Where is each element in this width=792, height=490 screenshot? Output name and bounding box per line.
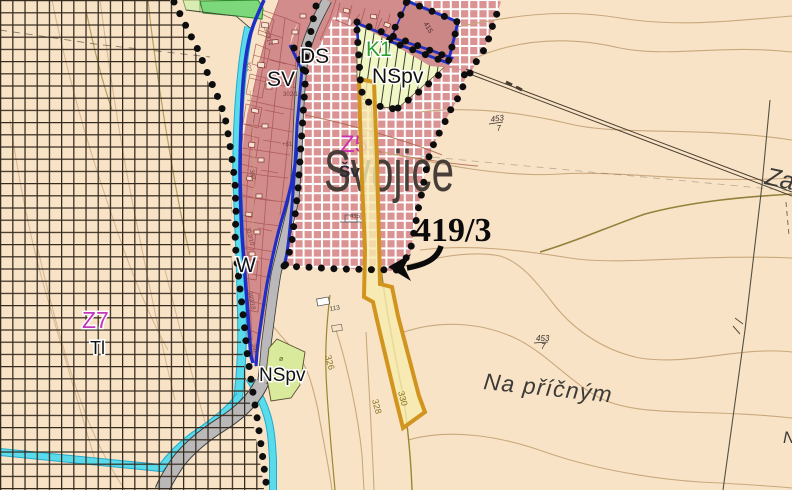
svg-text:Šv: Šv — [339, 162, 360, 181]
svg-text:W: W — [236, 254, 256, 277]
svg-text:NSpv: NSpv — [372, 65, 424, 88]
svg-text:K1: K1 — [366, 38, 392, 61]
svg-text:SV: SV — [267, 68, 295, 91]
svg-text:302/13: 302/13 — [283, 92, 302, 98]
svg-text:ø: ø — [279, 356, 284, 363]
svg-text:N: N — [783, 428, 792, 447]
svg-text:+81: +81 — [282, 142, 293, 148]
svg-text:415: 415 — [350, 214, 361, 220]
svg-text:DS: DS — [300, 45, 329, 68]
svg-text:419/3: 419/3 — [414, 212, 491, 249]
svg-text:Z7: Z7 — [82, 307, 109, 333]
svg-text:NSpv: NSpv — [259, 365, 306, 386]
svg-text:Tl: Tl — [90, 338, 105, 358]
svg-text:7: 7 — [541, 342, 546, 351]
